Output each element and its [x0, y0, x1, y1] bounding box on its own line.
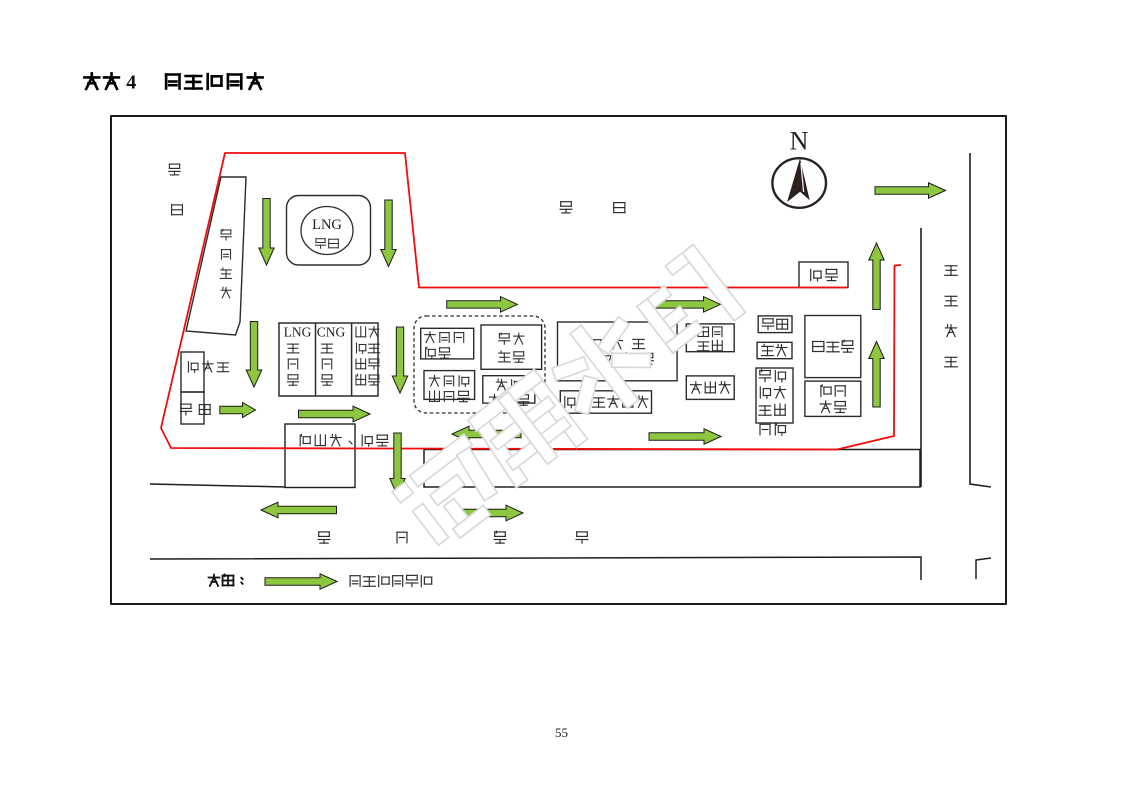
- svg-text:N: N: [790, 127, 809, 156]
- svg-text:55: 55: [555, 725, 568, 740]
- svg-text:LNG: LNG: [284, 325, 312, 340]
- svg-text:4: 4: [126, 72, 136, 94]
- svg-text:LNG: LNG: [312, 217, 342, 233]
- svg-text:CNG: CNG: [317, 325, 346, 340]
